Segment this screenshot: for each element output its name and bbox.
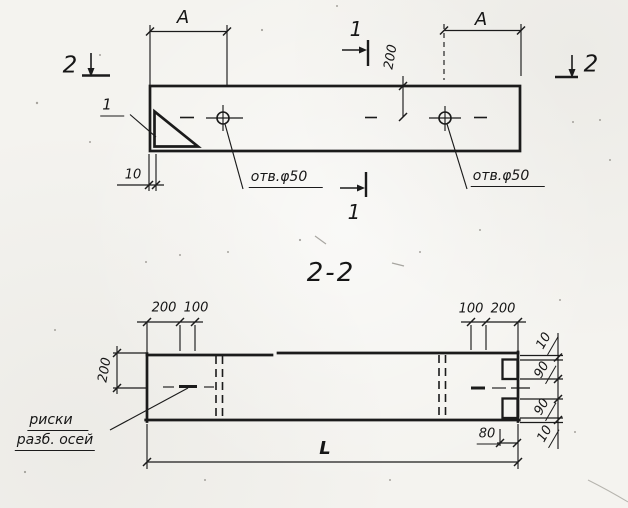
section-dim-length-label: L [319,440,330,458]
technical-drawing-sheet: 2 2 1 1 A A 200 10 1 отв.φ50 отв.φ50 2-2… [0,0,628,508]
section-hidden-hole-lines [216,355,446,419]
section-mark-2-right-label: 2 [584,54,599,77]
plan-beam-outline [150,86,520,151]
detail-1-leader [130,115,156,138]
hole-label-right: отв.φ50 [471,168,545,187]
hole-right-leader [447,124,467,189]
section-mark-2-left [82,53,110,77]
detail-1-label: 1 [100,96,124,117]
plan-dim-a-left [146,25,231,85]
dim-a-right-label: A [475,11,487,29]
hole-label-left: отв.φ50 [249,169,323,188]
section-dim-height-200 [113,346,146,394]
axis-mark-left [163,387,214,388]
plan-dim-200 [399,76,407,121]
axis-note-line2: разб. осей [15,432,95,451]
section-mark-1-top [342,40,368,66]
section-dim-200-left-label: 200 [152,302,177,315]
section-mark-1-bottom [340,172,366,197]
section-dim-topright [461,318,526,351]
section-dim-80 [496,429,521,447]
section-mark-1-bottom-label: 1 [348,202,361,222]
section-title: 2-2 [307,260,355,286]
plan-hole-right-group [365,106,487,131]
section-view [110,318,563,469]
dim-a-left-label: A [177,9,189,27]
section-beam-outline [146,352,520,422]
section-mark-1-top-label: 1 [350,19,363,39]
section-notch-bottom [503,399,518,419]
plan-hole-left-group [180,105,243,131]
section-dim-topleft [137,318,203,352]
section-dim-100-left-label: 100 [184,302,209,315]
hole-left-leader [225,124,243,189]
section-dim-200-right-label: 200 [491,303,516,316]
section-dim-80-label: 80 [477,427,498,445]
section-mark-2-right [555,55,578,78]
section-mark-2-left-label: 2 [63,55,78,78]
plan-dim-10-label: 10 [125,169,142,182]
plan-dim-a-right [440,24,525,80]
section-dim-length [143,424,522,469]
section-notch-top [503,360,518,380]
axis-note-line1: риски [27,412,88,431]
section-dim-100-right-label: 100 [459,303,484,316]
axis-note-leader [110,388,188,430]
